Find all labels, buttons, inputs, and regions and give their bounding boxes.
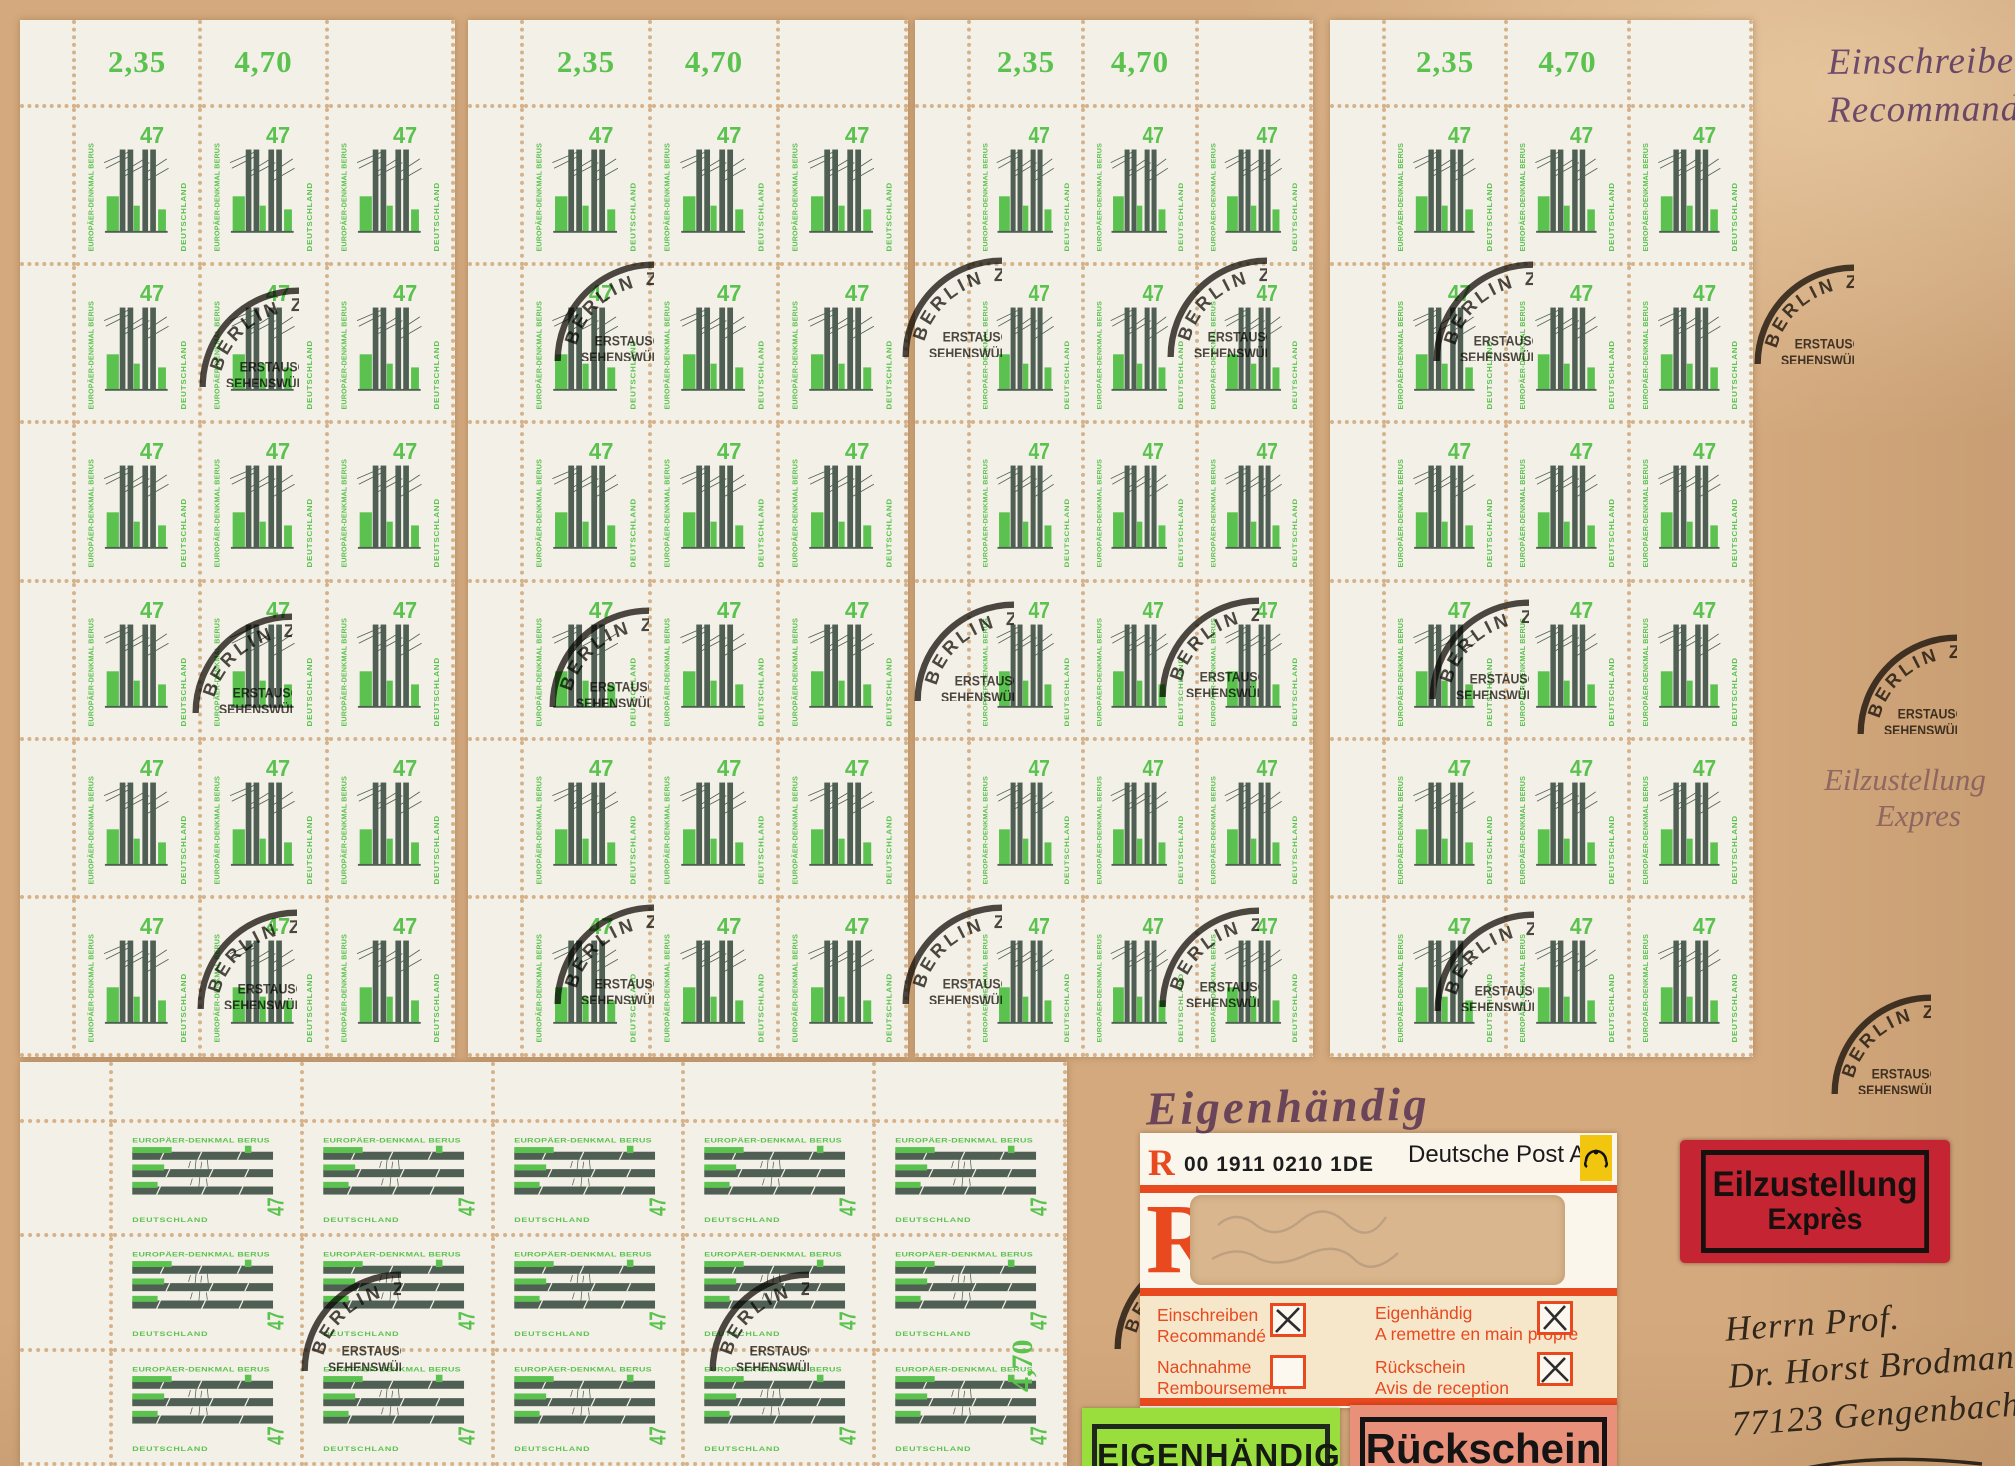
sheet-margin [915,266,971,424]
stamp-sheet [20,1062,1067,1466]
stamp [304,1237,495,1351]
stamp [329,266,455,424]
stamp [524,108,652,266]
sheet-margin-value: 4,70 [685,44,743,80]
checkbox-eigenhaendig [1537,1301,1573,1335]
stamp [1631,899,1753,1057]
stamp [113,1123,304,1237]
stamp [685,1123,876,1237]
stamp [524,899,652,1057]
stamp [971,424,1085,582]
stamp [1386,424,1508,582]
stamp [202,108,328,266]
sheet-margin [468,266,524,424]
sheet-margin [685,1062,876,1123]
stamp [495,1237,686,1351]
stamp [780,424,908,582]
stamp [202,266,328,424]
stamp [1085,583,1199,741]
sheet-margin [468,424,524,582]
sheet-margin [468,741,524,899]
sheet-margin [915,20,971,108]
checkbox-rueckschein [1537,1352,1573,1386]
registered-mail-label: R 00 1911 0210 1DE Deutsche Post AG R [1140,1133,1617,1408]
stamp [652,266,780,424]
stamp [652,108,780,266]
stamp [76,741,202,899]
stamp [1085,741,1199,899]
rueckschein-label: Rückschein [1350,1405,1617,1466]
sheet-margin [1330,266,1386,424]
stamp [76,899,202,1057]
stamp [652,741,780,899]
sheet-margin: 2,35 [76,20,202,108]
sheet-margin [1199,20,1313,108]
stamp [202,741,328,899]
sheet-margin [468,20,524,108]
sheet-margin [20,1123,113,1237]
label-header: R 00 1911 0210 1DE Deutsche Post AG [1140,1133,1617,1185]
sheet-margin [1330,108,1386,266]
stamp [329,899,455,1057]
stamp [1508,899,1630,1057]
recipient-address: Herrn Prof. Dr. Horst Brodmann 77123 Gen… [1723,1285,2015,1448]
sheet-margin [20,424,76,582]
stamp [329,741,455,899]
stamp [1386,266,1508,424]
stamp [329,108,455,266]
option-einschreiben: Einschreiben Recommandé [1157,1305,1266,1346]
stamp [876,1123,1067,1237]
stamp [524,424,652,582]
address-window [1190,1195,1565,1285]
sheet-margin: 4,70 [202,20,328,108]
stamp [1199,899,1313,1057]
sheet-margin [20,741,76,899]
stamp [304,1123,495,1237]
stamp [202,899,328,1057]
checkbox-einschreiben [1270,1303,1306,1337]
sheet-margin-value: 2,35 [557,44,615,80]
sheet-margin: 2,35 [971,20,1085,108]
label-divider [1140,1288,1617,1296]
stamp [524,266,652,424]
stamp [1386,899,1508,1057]
stamp [329,583,455,741]
sheet-margin [329,20,455,108]
stamp [1508,583,1630,741]
registered-r-small: R [1148,1145,1175,1182]
stamp [1199,424,1313,582]
sheet-margin [20,1237,113,1351]
sheet-margin [876,1062,1067,1123]
stamp [113,1352,304,1466]
sheet-margin [20,899,76,1057]
sheet-margin [915,108,971,266]
sheet-margin [468,583,524,741]
stamp [876,1237,1067,1351]
sheet-margin [20,583,76,741]
stamp [652,583,780,741]
registered-handstamp: Einschreiben Recommandé [1828,37,2015,135]
sheet-margin: 2,35 [1386,20,1508,108]
envelope-cover-scan: 2,354,702,354,702,354,702,354,70 EUROPÄE… [0,0,2015,1466]
sheet-margin [20,1062,113,1123]
sheet-margin [1330,741,1386,899]
stamp [1085,108,1199,266]
option-rueckschein: Rückschein Avis de reception [1375,1357,1509,1398]
checkbox-nachnahme [1270,1355,1306,1389]
sheet-margin: 4,70 [1508,20,1630,108]
sheet-margin [468,899,524,1057]
sheet-margin-value: 4,70 [1538,44,1596,80]
stamp [1508,266,1630,424]
stamp [76,424,202,582]
stamp [1508,424,1630,582]
sheet-margin [1330,424,1386,582]
sheet-margin [304,1062,495,1123]
stamp [1631,108,1753,266]
stamp [652,424,780,582]
stamp [971,266,1085,424]
sheet-margin [915,583,971,741]
sheet-margin-value: 4,70 [1111,44,1169,80]
stamp [1199,741,1313,899]
stamp-sheet: 2,354,70 [915,20,1313,1057]
deutsche-post-brand: Deutsche Post AG [1408,1141,1604,1169]
stamp [1631,424,1753,582]
stamp [113,1237,304,1351]
sheet-margin [113,1062,304,1123]
sheet-margin [915,424,971,582]
sheet-margin [468,108,524,266]
stamp [971,583,1085,741]
express-handstamp: Eilzustellung Expres [1824,762,1986,833]
stamp [495,1123,686,1237]
sheet-margin [915,741,971,899]
stamp [76,266,202,424]
sheet-margin [20,20,76,108]
sheet-margin: 4,70 [1085,20,1199,108]
barcode-number: 00 1911 0210 1DE [1184,1153,1374,1177]
stamp [652,899,780,1057]
sheet-margin [495,1062,686,1123]
stamp [1631,741,1753,899]
stamp [1085,899,1199,1057]
stamp [780,899,908,1057]
stamp [1631,266,1753,424]
stamp [329,424,455,582]
stamp [524,741,652,899]
address-flourish [1760,1448,1990,1466]
eigenhaendig-handstamp: Eigenhändig [1146,1078,1431,1137]
stamp [971,899,1085,1057]
sheet-margin [20,266,76,424]
sheet-margin-value: 2,35 [997,44,1055,80]
stamp [1085,266,1199,424]
stamp-sheet: 2,354,70 [20,20,455,1057]
sheet-margin [20,108,76,266]
sheet-margin-value-rotated: 4,70 [1006,1340,1040,1393]
sheet-margin [915,899,971,1057]
stamp [304,1352,495,1466]
stamp [76,583,202,741]
stamp [780,266,908,424]
stamp [1386,741,1508,899]
sheet-margin: 4,70 [652,20,780,108]
sheet-margin [1631,20,1753,108]
sheet-margin-value: 2,35 [1416,44,1474,80]
sheet-margin [780,20,908,108]
stamp [971,108,1085,266]
option-nachnahme: Nachnahme Remboursement [1157,1357,1286,1398]
sheet-margin-value: 4,70 [234,44,292,80]
sheet-margin: 2,35 [524,20,652,108]
stamp [1199,266,1313,424]
stamp [202,583,328,741]
pencil-note [1190,1195,1565,1285]
stamp [780,583,908,741]
stamp [1386,583,1508,741]
stamp [1631,583,1753,741]
stamp [524,583,652,741]
stamp [495,1352,686,1466]
stamp [1508,108,1630,266]
eigenhaendig-label: EIGENHÄNDIG [1082,1408,1340,1466]
stamp [780,108,908,266]
stamp [1199,583,1313,741]
stamp [1085,424,1199,582]
sheet-margin [1330,583,1386,741]
stamp-sheet: 2,354,70 [1330,20,1753,1057]
stamp-sheet: 2,354,70 [468,20,908,1057]
stamp [76,108,202,266]
stamp [202,424,328,582]
express-label-frame: Eilzustellung Exprès [1701,1150,1929,1253]
sheet-margin-value: 2,35 [108,44,166,80]
sheet-margin [20,1352,113,1466]
posthorn-icon [1580,1135,1612,1181]
stamp [1199,108,1313,266]
stamp [685,1237,876,1351]
stamp [780,741,908,899]
stamp [685,1352,876,1466]
sheet-margin [1330,899,1386,1057]
stamp [971,741,1085,899]
express-label: Eilzustellung Exprès [1680,1140,1950,1263]
stamp [1386,108,1508,266]
sheet-margin [1330,20,1386,108]
stamp [1508,741,1630,899]
